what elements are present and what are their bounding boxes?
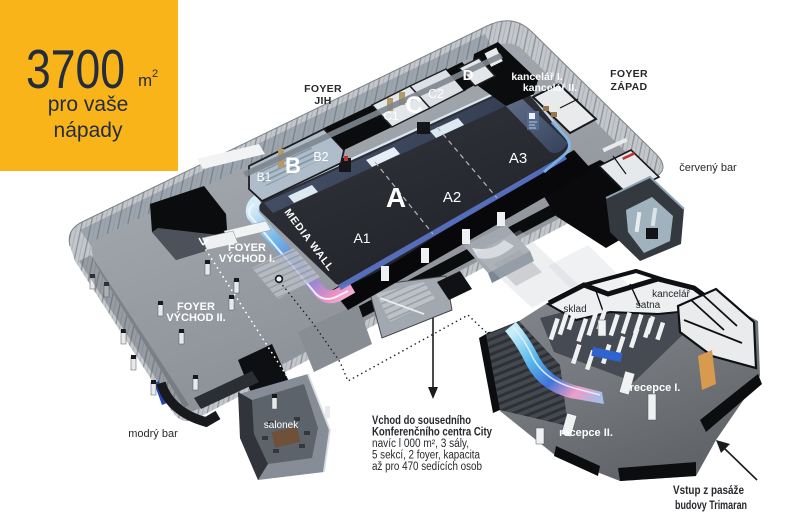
svg-text:nápady: nápady [54, 119, 123, 142]
svg-text:modrý bar: modrý bar [128, 428, 178, 440]
svg-text:budovy Trimaran: budovy Trimaran [675, 500, 747, 512]
svg-text:ZÁPAD: ZÁPAD [611, 80, 648, 93]
svg-text:navíc l 000 m², 3 sály,: navíc l 000 m², 3 sály, [372, 438, 469, 450]
svg-text:kancelář II.: kancelář II. [523, 82, 577, 94]
svg-text:A2: A2 [443, 189, 461, 206]
svg-text:šatna: šatna [636, 300, 661, 311]
svg-text:B1: B1 [257, 170, 272, 184]
svg-text:FOYER: FOYER [610, 68, 648, 80]
svg-text:červený bar: červený bar [679, 162, 737, 174]
svg-text:až pro 470 sedících osob: až pro 470 sedících osob [372, 461, 482, 473]
svg-text:C2: C2 [428, 87, 444, 101]
svg-text:5 sekcí, 2 foyer, kapacita: 5 sekcí, 2 foyer, kapacita [372, 450, 481, 462]
svg-text:salonek: salonek [264, 420, 299, 431]
svg-text:m: m [138, 71, 152, 90]
svg-text:recepce II.: recepce II. [559, 427, 613, 439]
svg-text:A3: A3 [509, 150, 527, 167]
svg-text:VÝCHOD I.: VÝCHOD I. [219, 252, 275, 265]
svg-text:3700: 3700 [26, 38, 125, 100]
svg-text:D: D [463, 67, 474, 84]
svg-text:C: C [405, 92, 422, 119]
svg-text:sklad: sklad [563, 304, 586, 315]
svg-text:Vstup z pasáže: Vstup z pasáže [673, 485, 744, 497]
svg-text:C1: C1 [383, 109, 399, 123]
svg-text:2: 2 [152, 68, 158, 80]
svg-text:A: A [386, 182, 406, 213]
svg-text:JIH: JIH [314, 95, 331, 107]
svg-text:B2: B2 [313, 150, 328, 164]
svg-text:pro vaše: pro vaše [48, 93, 129, 116]
svg-text:recepce I.: recepce I. [630, 382, 681, 394]
svg-text:Konferenčního centra City: Konferenčního centra City [372, 427, 492, 439]
svg-text:Vchod do sousedního: Vchod do sousedního [372, 415, 471, 427]
svg-text:VÝCHOD II.: VÝCHOD II. [166, 311, 225, 324]
svg-text:B: B [285, 153, 301, 178]
svg-text:FOYER: FOYER [304, 83, 342, 95]
svg-text:A1: A1 [353, 230, 370, 246]
svg-text:kancelář: kancelář [652, 289, 690, 300]
